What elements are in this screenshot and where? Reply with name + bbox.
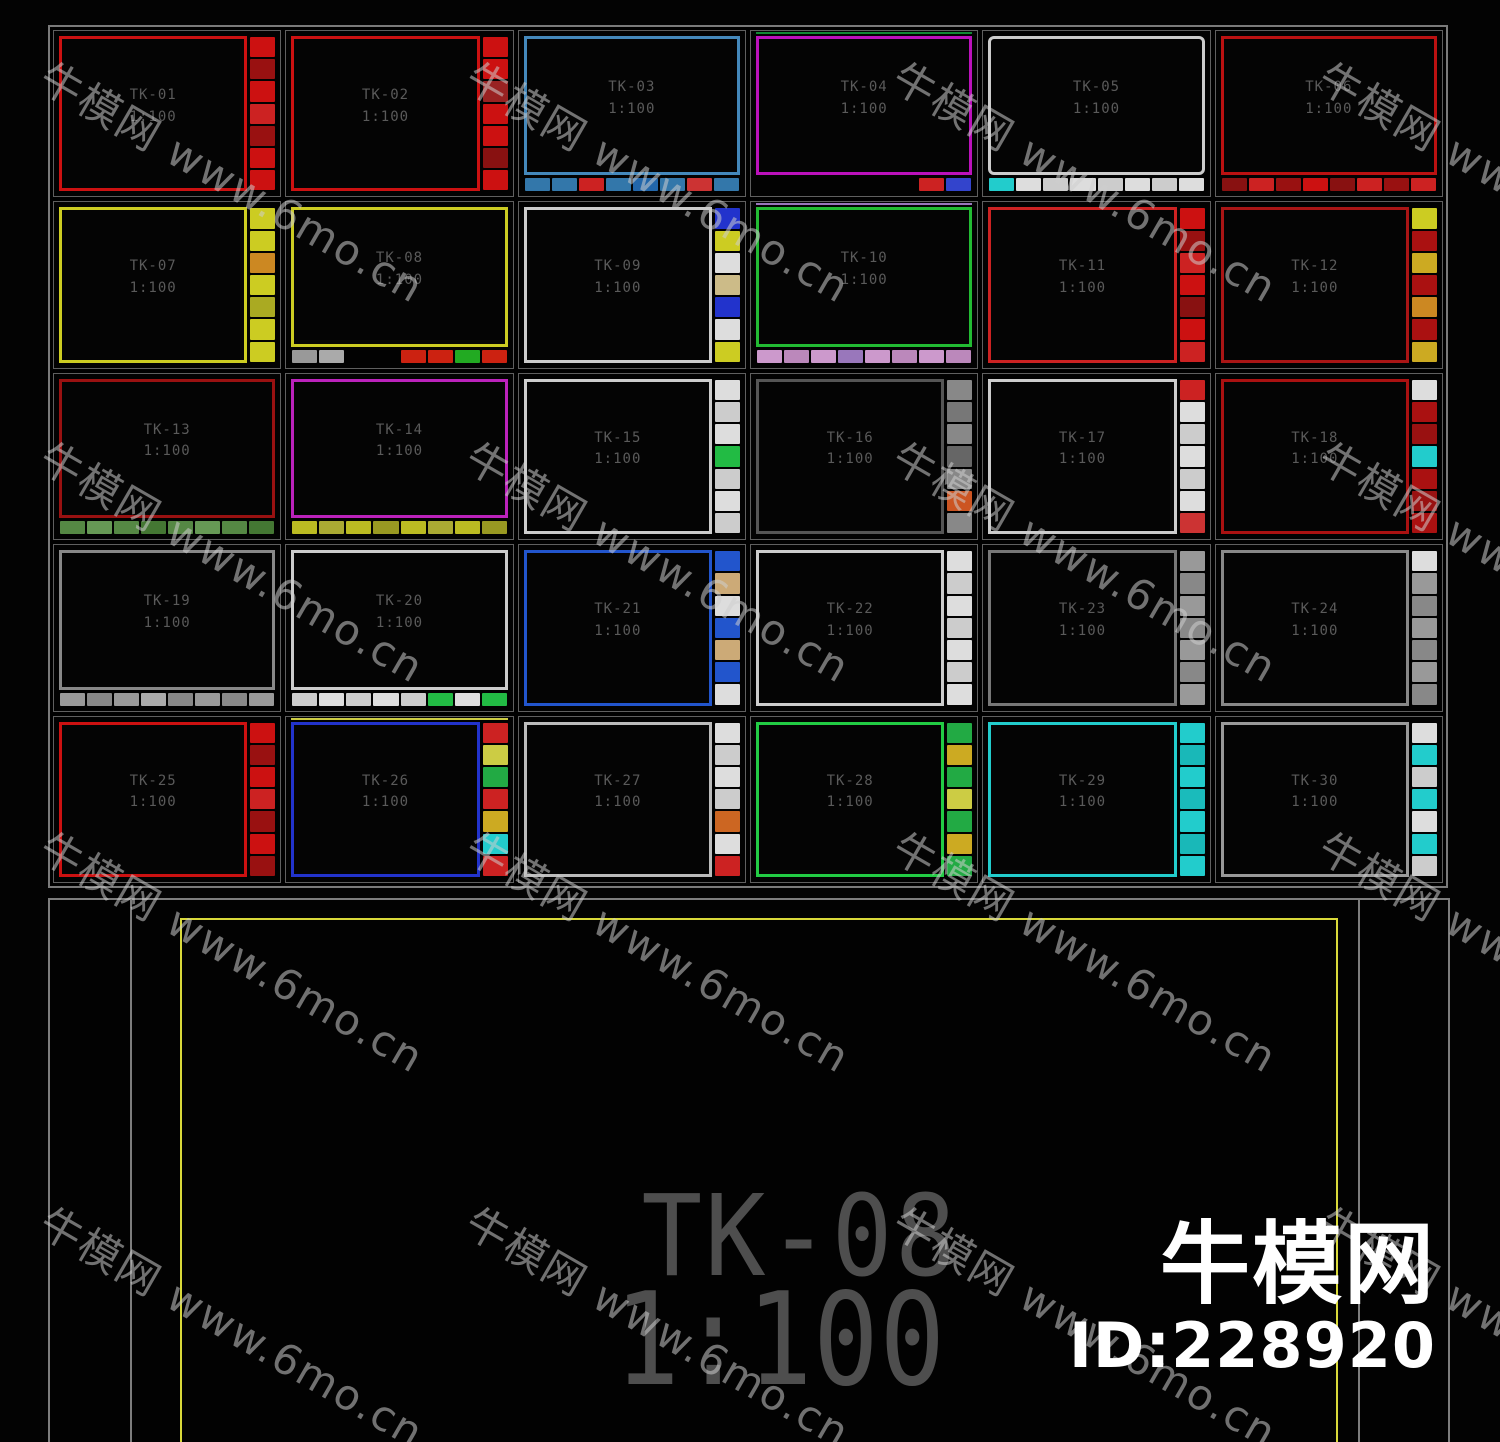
frame-title-block: TK-19 1:100 (144, 591, 191, 634)
strip-block (483, 745, 508, 765)
strip-block (1125, 178, 1150, 191)
strip-block (892, 178, 917, 191)
frame-title-block: TK-12 1:100 (1291, 256, 1338, 299)
frame-title-block: TK-01 1:100 (130, 85, 177, 128)
strip-block (947, 573, 972, 593)
frame-label: TK-06 (1305, 77, 1352, 99)
title-strip (947, 379, 972, 534)
drawing-frame[interactable]: TK-13 1:100 (59, 379, 275, 534)
grid-cell: TK-18 1:100 (1215, 373, 1443, 540)
frame-title-block: TK-18 1:100 (1291, 428, 1338, 471)
sheet-divider-left (130, 900, 132, 1442)
frame-border: TK-12 1:100 (1221, 207, 1409, 362)
frame-title-block: TK-26 1:100 (362, 771, 409, 814)
strip-block (1412, 253, 1437, 273)
strip-block (455, 350, 480, 363)
frame-label: TK-03 (608, 77, 655, 99)
drawing-frame[interactable]: TK-24 1:100 (1221, 550, 1437, 705)
strip-block (715, 424, 740, 444)
frame-border: TK-15 1:100 (524, 379, 712, 534)
strip-block (250, 59, 275, 79)
grid-cell: TK-19 1:100 (53, 544, 281, 711)
frame-border: TK-07 1:100 (59, 207, 247, 362)
strip-block (401, 350, 426, 363)
strip-block (715, 275, 740, 295)
strip-block (1412, 319, 1437, 339)
strip-block (483, 834, 508, 854)
strip-block (1180, 424, 1205, 444)
frame-label: TK-19 (144, 591, 191, 613)
grid-cell: TK-30 1:100 (1215, 716, 1443, 883)
strip-block (715, 640, 740, 660)
strip-block (1152, 178, 1177, 191)
strip-block (168, 521, 193, 534)
frame-label: TK-11 (1059, 256, 1106, 278)
drawing-frame[interactable]: TK-10 1:100 (756, 207, 972, 362)
strip-block (552, 178, 577, 191)
strip-block (483, 148, 508, 168)
strip-block (455, 693, 480, 706)
frame-scale: 1:100 (827, 449, 874, 471)
drawing-frame[interactable]: TK-26 1:100 (291, 722, 507, 877)
strip-block (1412, 208, 1437, 228)
strip-block (195, 693, 220, 706)
strip-block (483, 81, 508, 101)
strip-block (1179, 178, 1204, 191)
frame-scale: 1:100 (1291, 621, 1338, 643)
title-strip (947, 722, 972, 877)
strip-block (168, 693, 193, 706)
frame-border: TK-29 1:100 (988, 722, 1176, 877)
strip-block (250, 126, 275, 146)
strip-block (250, 37, 275, 57)
drawing-frame[interactable]: TK-12 1:100 (1221, 207, 1437, 362)
frame-scale: 1:100 (362, 792, 409, 814)
frame-title-block: TK-11 1:100 (1059, 256, 1106, 299)
strip-block (715, 723, 740, 743)
strip-block (1180, 253, 1205, 273)
strip-block (715, 662, 740, 682)
grid-cell: TK-04 1:100 (750, 30, 978, 197)
strip-block (1357, 178, 1382, 191)
strip-block (250, 856, 275, 876)
strip-block (784, 178, 809, 191)
strip-block (947, 596, 972, 616)
grid-cell: TK-07 1:100 (53, 201, 281, 368)
frame-border: TK-22 1:100 (756, 550, 944, 705)
strip-block (346, 521, 371, 534)
strip-block (250, 297, 275, 317)
strip-block (87, 521, 112, 534)
drawing-frame[interactable]: TK-14 1:100 (291, 379, 507, 534)
frame-scale: 1:100 (594, 792, 641, 814)
frame-scale: 1:100 (144, 613, 191, 635)
strip-block (401, 693, 426, 706)
strip-block (947, 745, 972, 765)
strip-block (1180, 856, 1205, 876)
title-strip (756, 350, 972, 363)
frame-scale: 1:100 (594, 621, 641, 643)
frame-border: TK-27 1:100 (524, 722, 712, 877)
strip-block (947, 618, 972, 638)
frame-border: TK-26 1:100 (291, 722, 479, 877)
frame-label: TK-04 (841, 77, 888, 99)
strip-block (1412, 491, 1437, 511)
strip-block (1412, 767, 1437, 787)
frame-label: TK-27 (594, 771, 641, 793)
frame-border: TK-19 1:100 (59, 550, 275, 689)
cad-canvas[interactable]: TK-01 1:100 TK-02 1:100 (0, 0, 1500, 1442)
strip-block (1070, 178, 1095, 191)
strip-block (1180, 446, 1205, 466)
grid-cell: TK-08 1:100 (285, 201, 513, 368)
drawing-frame[interactable]: TK-06 1:100 (1221, 36, 1437, 191)
strip-block (633, 178, 658, 191)
drawing-frame[interactable]: TK-25 1:100 (59, 722, 275, 877)
strip-block (373, 693, 398, 706)
drawing-frame[interactable]: TK-07 1:100 (59, 207, 275, 362)
strip-block (1303, 178, 1328, 191)
grid-cell: TK-24 1:100 (1215, 544, 1443, 711)
strip-block (1412, 789, 1437, 809)
strip-block (715, 684, 740, 704)
strip-block (947, 469, 972, 489)
title-strip (715, 207, 740, 362)
title-strip (756, 178, 972, 191)
strip-block (1180, 811, 1205, 831)
title-strip (1180, 722, 1205, 877)
strip-block (483, 856, 508, 876)
frame-title-block: TK-20 1:100 (376, 591, 423, 634)
frame-scale: 1:100 (376, 613, 423, 635)
title-strip (59, 521, 275, 534)
sheet-grid: TK-01 1:100 TK-02 1:100 (48, 25, 1448, 888)
strip-block (687, 178, 712, 191)
frame-border: TK-25 1:100 (59, 722, 247, 877)
title-strip (947, 550, 972, 705)
strip-block (1180, 662, 1205, 682)
title-strip (291, 521, 507, 534)
site-logo: 牛模网 ID:228920 (1069, 1218, 1436, 1378)
frame-label: TK-01 (130, 85, 177, 107)
drawing-frame[interactable]: TK-22 1:100 (756, 550, 972, 705)
drawing-frame[interactable]: TK-15 1:100 (524, 379, 740, 534)
strip-block (606, 178, 631, 191)
strip-block (1180, 402, 1205, 422)
strip-block (1412, 856, 1437, 876)
strip-block (946, 350, 971, 363)
strip-block (1412, 640, 1437, 660)
title-strip (250, 36, 275, 191)
frame-scale: 1:100 (362, 107, 409, 129)
drawing-frame[interactable]: TK-01 1:100 (59, 36, 275, 191)
strip-block (1043, 178, 1068, 191)
drawing-frame[interactable]: TK-18 1:100 (1221, 379, 1437, 534)
strip-block (715, 551, 740, 571)
strip-block (715, 811, 740, 831)
title-strip (291, 350, 507, 363)
title-strip (483, 36, 508, 191)
strip-block (947, 834, 972, 854)
strip-block (114, 693, 139, 706)
frame-title-block: TK-02 1:100 (362, 85, 409, 128)
strip-block (1180, 469, 1205, 489)
frame-scale: 1:100 (1059, 449, 1106, 471)
strip-block (249, 693, 274, 706)
strip-block (1180, 297, 1205, 317)
strip-block (1180, 231, 1205, 251)
frame-border: TK-23 1:100 (988, 550, 1176, 705)
frame-title-block: TK-30 1:100 (1291, 771, 1338, 814)
grid-cell: TK-06 1:100 (1215, 30, 1443, 197)
drawing-frame[interactable]: TK-19 1:100 (59, 550, 275, 705)
strip-block (87, 693, 112, 706)
strip-block (1412, 811, 1437, 831)
strip-block (947, 424, 972, 444)
strip-block (250, 811, 275, 831)
strip-block (319, 350, 344, 363)
frame-label: TK-22 (827, 599, 874, 621)
strip-block (715, 231, 740, 251)
frame-border: TK-21 1:100 (524, 550, 712, 705)
grid-cell: TK-12 1:100 (1215, 201, 1443, 368)
frame-scale: 1:100 (841, 99, 888, 121)
frame-label: TK-13 (144, 420, 191, 442)
strip-block (483, 37, 508, 57)
strip-block (1180, 834, 1205, 854)
frame-label: TK-17 (1059, 428, 1106, 450)
frame-title-block: TK-08 1:100 (376, 248, 423, 291)
strip-block (865, 178, 890, 191)
strip-block (1412, 424, 1437, 444)
strip-block (714, 178, 739, 191)
drawing-frame[interactable]: TK-03 1:100 (524, 36, 740, 191)
strip-block (1412, 573, 1437, 593)
strip-block (715, 745, 740, 765)
drawing-frame[interactable]: TK-09 1:100 (524, 207, 740, 362)
grid-cell: TK-14 1:100 (285, 373, 513, 540)
strip-block (715, 297, 740, 317)
drawing-frame[interactable]: TK-16 1:100 (756, 379, 972, 534)
strip-block (1180, 640, 1205, 660)
frame-title-block: TK-10 1:100 (841, 248, 888, 291)
strip-block (1180, 208, 1205, 228)
frame-label: TK-14 (376, 420, 423, 442)
strip-block (483, 767, 508, 787)
strip-block (892, 350, 917, 363)
frame-border: TK-05 1:100 (988, 36, 1204, 175)
frame-scale: 1:100 (608, 99, 655, 121)
strip-block (947, 811, 972, 831)
title-strip (250, 207, 275, 362)
strip-block (483, 723, 508, 743)
title-strip (524, 178, 740, 191)
strip-block (838, 178, 863, 191)
frame-label: TK-12 (1291, 256, 1338, 278)
strip-block (250, 767, 275, 787)
title-strip (1221, 178, 1437, 191)
strip-block (428, 521, 453, 534)
strip-block (811, 350, 836, 363)
drawing-frame[interactable]: TK-17 1:100 (988, 379, 1204, 534)
strip-block (292, 521, 317, 534)
frame-label: TK-10 (841, 248, 888, 270)
strip-block (1180, 789, 1205, 809)
strip-block (114, 521, 139, 534)
strip-block (1412, 596, 1437, 616)
site-logo-text: 牛模网 (1069, 1218, 1436, 1313)
strip-block (919, 178, 944, 191)
frame-label: TK-23 (1059, 599, 1106, 621)
frame-border: TK-18 1:100 (1221, 379, 1409, 534)
strip-block (715, 618, 740, 638)
drawing-frame[interactable]: TK-28 1:100 (756, 722, 972, 877)
frame-scale: 1:100 (1073, 99, 1120, 121)
drawing-frame[interactable]: TK-30 1:100 (1221, 722, 1437, 877)
strip-block (319, 521, 344, 534)
title-strip (1180, 207, 1205, 362)
strip-block (1249, 178, 1274, 191)
strip-block (1412, 446, 1437, 466)
title-strip (1412, 207, 1437, 362)
strip-block (947, 513, 972, 533)
strip-block (946, 178, 971, 191)
strip-block (250, 319, 275, 339)
drawing-frame[interactable]: TK-20 1:100 (291, 550, 507, 705)
strip-block (250, 148, 275, 168)
drawing-frame[interactable]: TK-27 1:100 (524, 722, 740, 877)
frame-label: TK-02 (362, 85, 409, 107)
grid-cell: TK-26 1:100 (285, 716, 513, 883)
title-strip (988, 178, 1204, 191)
frame-label: TK-05 (1073, 77, 1120, 99)
drawing-frame[interactable]: TK-04 1:100 (756, 36, 972, 191)
strip-block (947, 789, 972, 809)
strip-block (1384, 178, 1409, 191)
drawing-frame[interactable]: TK-08 1:100 (291, 207, 507, 362)
strip-block (1098, 178, 1123, 191)
strip-block (947, 402, 972, 422)
title-strip (1412, 722, 1437, 877)
strip-block (455, 521, 480, 534)
strip-block (250, 275, 275, 295)
strip-block (373, 350, 398, 363)
strip-block (249, 521, 274, 534)
strip-block (250, 789, 275, 809)
strip-block (250, 342, 275, 362)
strip-block (250, 834, 275, 854)
strip-block (919, 350, 944, 363)
frame-border: TK-13 1:100 (59, 379, 275, 518)
strip-block (1412, 662, 1437, 682)
frame-label: TK-15 (594, 428, 641, 450)
strip-block (483, 789, 508, 809)
strip-block (947, 856, 972, 876)
grid-cell: TK-17 1:100 (982, 373, 1210, 540)
frame-label: TK-29 (1059, 771, 1106, 793)
grid-cell: TK-13 1:100 (53, 373, 281, 540)
drawing-frame[interactable]: TK-21 1:100 (524, 550, 740, 705)
strip-block (483, 104, 508, 124)
strip-block (483, 59, 508, 79)
frame-border: TK-30 1:100 (1221, 722, 1409, 877)
strip-block (715, 834, 740, 854)
drawing-frame[interactable]: TK-29 1:100 (988, 722, 1204, 877)
frame-title-block: TK-04 1:100 (841, 77, 888, 120)
frame-border: TK-16 1:100 (756, 379, 944, 534)
title-strip (1180, 550, 1205, 705)
strip-block (784, 350, 809, 363)
strip-block (483, 170, 508, 190)
grid-cell: TK-23 1:100 (982, 544, 1210, 711)
strip-block (947, 551, 972, 571)
strip-block (1180, 767, 1205, 787)
strip-block (1412, 380, 1437, 400)
strip-block (715, 596, 740, 616)
frame-border: TK-17 1:100 (988, 379, 1176, 534)
strip-block (757, 350, 782, 363)
strip-block (292, 693, 317, 706)
grid-cell: TK-16 1:100 (750, 373, 978, 540)
strip-block (1412, 684, 1437, 704)
strip-block (482, 521, 507, 534)
strip-block (1180, 723, 1205, 743)
strip-block (947, 723, 972, 743)
strip-block (660, 178, 685, 191)
strip-block (1016, 178, 1041, 191)
strip-block (428, 693, 453, 706)
title-strip (715, 379, 740, 534)
strip-block (401, 521, 426, 534)
strip-block (715, 380, 740, 400)
strip-block (319, 693, 344, 706)
drawing-frame[interactable]: TK-02 1:100 (291, 36, 507, 191)
frame-label: TK-26 (362, 771, 409, 793)
frame-title-block: TK-24 1:100 (1291, 599, 1338, 642)
strip-block (60, 693, 85, 706)
frame-label: TK-28 (827, 771, 874, 793)
grid-cell: TK-11 1:100 (982, 201, 1210, 368)
drawing-frame[interactable]: TK-11 1:100 (988, 207, 1204, 362)
drawing-frame[interactable]: TK-23 1:100 (988, 550, 1204, 705)
frame-scale: 1:100 (376, 270, 423, 292)
strip-block (482, 350, 507, 363)
strip-block (715, 253, 740, 273)
frame-border: TK-06 1:100 (1221, 36, 1437, 175)
strip-block (250, 170, 275, 190)
frame-label: TK-25 (130, 771, 177, 793)
active-sheet-scale: 1:100 (398, 1266, 1163, 1415)
strip-block (483, 811, 508, 831)
drawing-frame[interactable]: TK-05 1:100 (988, 36, 1204, 191)
grid-cell: TK-25 1:100 (53, 716, 281, 883)
strip-block (811, 178, 836, 191)
grid-cell: TK-01 1:100 (53, 30, 281, 197)
frame-border: TK-09 1:100 (524, 207, 712, 362)
strip-block (250, 231, 275, 251)
site-logo-id: ID:228920 (1069, 1313, 1436, 1378)
frame-scale: 1:100 (1305, 99, 1352, 121)
frame-scale: 1:100 (1291, 792, 1338, 814)
strip-block (715, 342, 740, 362)
frame-label: TK-20 (376, 591, 423, 613)
strip-block (1180, 491, 1205, 511)
frame-scale: 1:100 (1059, 278, 1106, 300)
frame-scale: 1:100 (594, 278, 641, 300)
strip-block (947, 662, 972, 682)
strip-block (60, 521, 85, 534)
frame-scale: 1:100 (827, 792, 874, 814)
